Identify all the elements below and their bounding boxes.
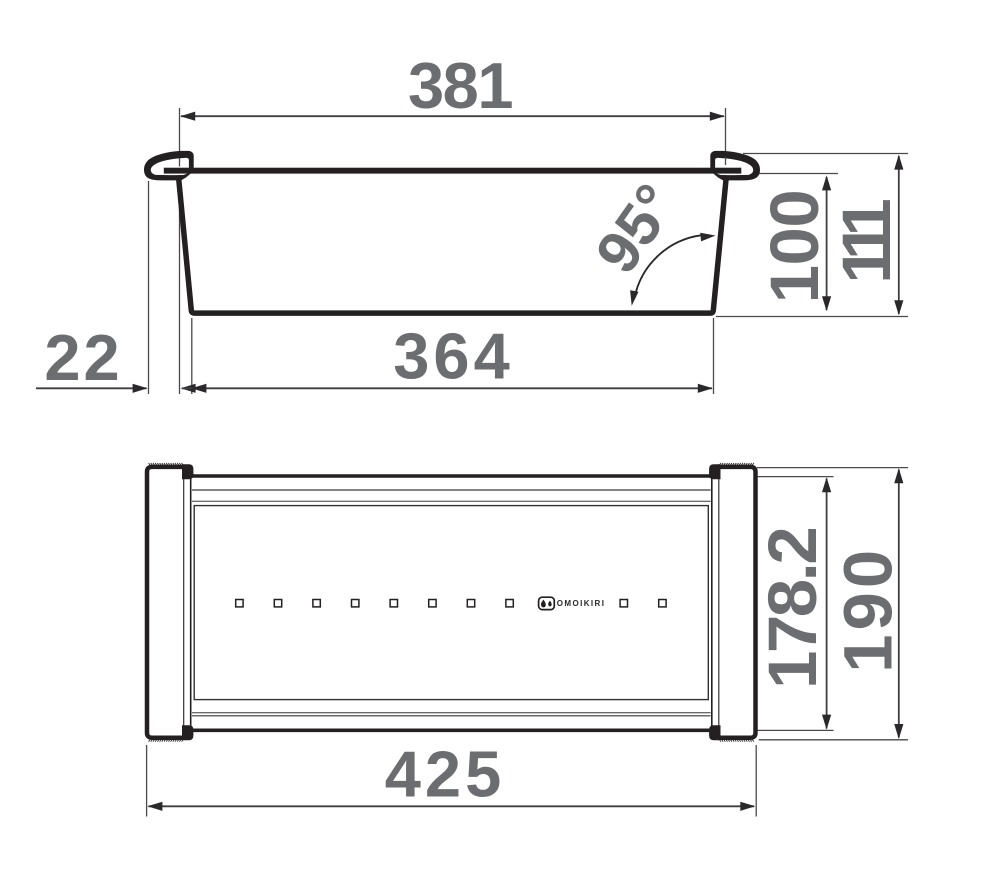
svg-text:100: 100 [756, 190, 833, 304]
svg-text:OMOIKIRI: OMOIKIRI [557, 599, 606, 608]
svg-text:190: 190 [830, 546, 907, 673]
svg-text:22: 22 [44, 321, 122, 394]
svg-text:425: 425 [385, 738, 505, 811]
svg-text:381: 381 [408, 49, 512, 122]
svg-text:364: 364 [393, 320, 513, 393]
svg-text:178.2: 178.2 [754, 529, 831, 689]
svg-text:111: 111 [828, 200, 905, 284]
